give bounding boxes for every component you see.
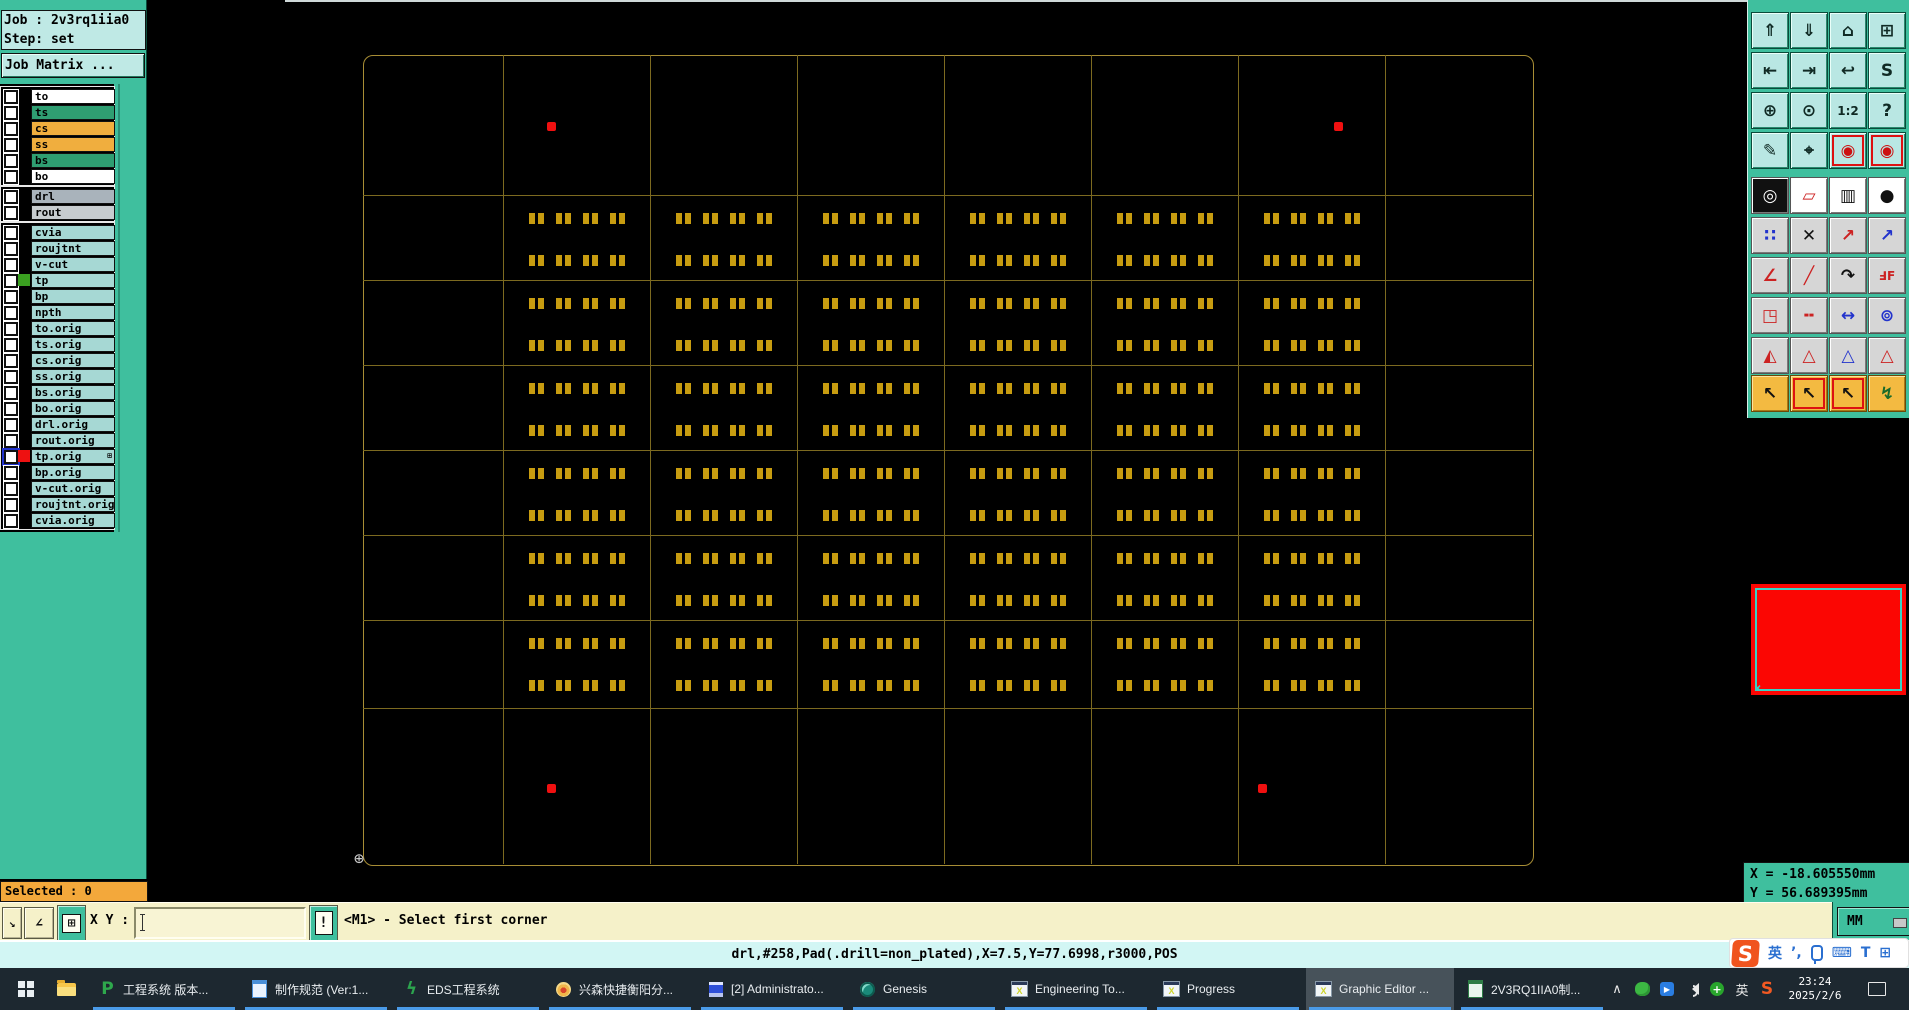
- layer-checkbox-tp[interactable]: [4, 274, 18, 288]
- pad-cluster: [970, 298, 985, 309]
- alert-icon: !: [315, 911, 333, 935]
- pad-cluster: [850, 553, 865, 564]
- layer-checkbox-ss.orig[interactable]: [4, 370, 18, 384]
- layer-row-tp.orig[interactable]: tp.orig⊞: [1, 448, 113, 464]
- pad-cluster: [997, 638, 1012, 649]
- pad-cluster: [877, 255, 892, 266]
- layer-row-to.orig[interactable]: to.orig: [1, 320, 113, 336]
- pad-cluster: [997, 298, 1012, 309]
- layer-checkbox-v-cut.orig[interactable]: [4, 482, 18, 496]
- navigator-overview[interactable]: ×: [1751, 584, 1906, 695]
- pad-cluster: [1051, 510, 1066, 521]
- layer-row-cvia.orig[interactable]: cvia.orig: [1, 512, 113, 528]
- pad-cluster: [703, 595, 718, 606]
- red-frame-decoration: [1793, 378, 1825, 409]
- input-lang-indicator[interactable]: 英: [1730, 968, 1754, 1010]
- action-center-icon[interactable]: [1868, 982, 1886, 996]
- pad-cluster: [583, 255, 598, 266]
- grid-hline-7: [363, 708, 1532, 709]
- pad-cluster: [823, 213, 838, 224]
- taskbar-app-5[interactable]: [2] Administrato...: [698, 968, 846, 1010]
- y-coordinate: Y = 56.689395mm: [1750, 884, 1909, 903]
- pad-cluster: [1264, 298, 1279, 309]
- pad-cluster: [1051, 340, 1066, 351]
- layer-label: drl: [31, 189, 115, 204]
- top-border-line: [285, 0, 1909, 2]
- pad-cluster: [850, 255, 865, 266]
- help-button[interactable]: ?: [1868, 92, 1906, 129]
- break-segment-button[interactable]: ╍: [1790, 297, 1828, 334]
- pad-cluster: [997, 425, 1012, 436]
- layer-row-drl.orig[interactable]: drl.orig: [1, 416, 113, 432]
- pad-cluster: [1051, 553, 1066, 564]
- grid-hline-1: [363, 195, 1532, 196]
- layer-row-bs.orig[interactable]: bs.orig: [1, 384, 113, 400]
- serpentine-button[interactable]: S: [1868, 52, 1906, 89]
- pad-cluster: [877, 340, 892, 351]
- layer-row-bs[interactable]: bs: [1, 152, 113, 168]
- origin-probe-button[interactable]: ⌖: [1790, 132, 1828, 169]
- pad-cluster: [823, 680, 838, 691]
- pad-cluster: [676, 340, 691, 351]
- taskbar-app-8[interactable]: XProgress: [1154, 968, 1302, 1010]
- pad-cluster: [1024, 213, 1039, 224]
- pad-cluster: [1291, 553, 1306, 564]
- grid-hline-6: [363, 620, 1532, 621]
- delete-object-button[interactable]: ✕: [1790, 217, 1828, 254]
- layer-row-npth[interactable]: npth: [1, 304, 113, 320]
- pad-cluster: [757, 340, 772, 351]
- pad-cluster: [1144, 638, 1159, 649]
- home-view-button[interactable]: ⌂: [1829, 12, 1867, 49]
- ime-language-toggle[interactable]: 英: [1768, 943, 1782, 963]
- pad-cluster: [1345, 213, 1360, 224]
- pad-cluster: [1198, 680, 1213, 691]
- layer-checkbox-cs[interactable]: [4, 122, 18, 136]
- ime-microphone-icon[interactable]: [1811, 945, 1823, 961]
- sogou-tray-icon[interactable]: S: [1755, 968, 1779, 1010]
- select-single-button[interactable]: ↖: [1751, 375, 1789, 412]
- pad-cluster: [529, 298, 544, 309]
- layer-checkbox-ss[interactable]: [4, 138, 18, 152]
- reshape-button[interactable]: ▱: [1790, 177, 1828, 214]
- arrow-under-button[interactable]: ◭: [1751, 337, 1789, 374]
- pad-cluster: [529, 510, 544, 521]
- pad-cluster: [610, 510, 625, 521]
- invert-display-button[interactable]: ◎: [1751, 177, 1789, 214]
- layer-label: ts: [31, 105, 115, 120]
- layer-row-cs.orig[interactable]: cs.orig: [1, 352, 113, 368]
- pad-cluster: [703, 553, 718, 564]
- origin-marker-icon: ⊕: [354, 851, 364, 868]
- wechat-icon[interactable]: [1630, 968, 1654, 1010]
- zoom-area-button[interactable]: ⇑: [1751, 12, 1789, 49]
- layer-row-tp[interactable]: tp: [1, 272, 113, 288]
- messenger-icon[interactable]: ▶: [1655, 968, 1679, 1010]
- ime-skin-icon[interactable]: T: [1861, 945, 1871, 961]
- pan-right-button[interactable]: ⇥: [1790, 52, 1828, 89]
- pad-cluster: [610, 383, 625, 394]
- pad-cluster: [610, 468, 625, 479]
- grid-vline-5: [1091, 55, 1092, 864]
- chevron-up-icon[interactable]: ∧: [1605, 968, 1629, 1010]
- sogou-logo-icon[interactable]: S: [1731, 940, 1760, 967]
- pad-cluster: [529, 340, 544, 351]
- folder-icon: [57, 983, 76, 996]
- previous-view-button[interactable]: ↩: [1829, 52, 1867, 89]
- layer-row-ts[interactable]: ts: [1, 104, 113, 120]
- select-polygon-button[interactable]: ↖: [1829, 375, 1867, 412]
- layer-row-rout.orig[interactable]: rout.orig: [1, 432, 113, 448]
- pad-cluster: [529, 595, 544, 606]
- layer-row-drl[interactable]: drl: [1, 188, 113, 204]
- pad-cluster: [970, 425, 985, 436]
- pad-cluster: [730, 595, 745, 606]
- taskbar-app-2[interactable]: 制作规范 (Ver:1...: [242, 968, 390, 1010]
- pad-cluster: [1144, 553, 1159, 564]
- arrow-gate-button[interactable]: △: [1829, 337, 1867, 374]
- grid-icon: ⊞: [62, 914, 81, 933]
- xy-input-value: [136, 914, 146, 929]
- pad-cluster: [1198, 425, 1213, 436]
- pad-cluster: [529, 255, 544, 266]
- pad-cluster: [1198, 468, 1213, 479]
- pad-cluster: [823, 298, 838, 309]
- taskbar-app-6[interactable]: Genesis: [850, 968, 998, 1010]
- pad-cluster: [997, 595, 1012, 606]
- pad-cluster: [583, 638, 598, 649]
- pad-cluster: [1144, 255, 1159, 266]
- pad-cluster: [703, 680, 718, 691]
- pad-cluster: [1198, 340, 1213, 351]
- layer-checkbox-bo.orig[interactable]: [4, 402, 18, 416]
- pad-cluster: [1024, 553, 1039, 564]
- pad-cluster: [757, 553, 772, 564]
- connectivity-button[interactable]: ∷: [1751, 217, 1789, 254]
- layer-label: tp: [31, 273, 115, 288]
- pad-cluster: [757, 255, 772, 266]
- job-info-box: Job : 2v3rq1iia0 Step: set: [1, 10, 146, 50]
- units-button[interactable]: MM: [1837, 907, 1909, 936]
- pad-cluster: [1264, 468, 1279, 479]
- start-button[interactable]: [6, 968, 46, 1010]
- zoom-center-button[interactable]: ⊙: [1790, 92, 1828, 129]
- layer-row-cvia[interactable]: cvia: [1, 224, 113, 240]
- layer-label: npth: [31, 305, 115, 320]
- pad-cluster: [1144, 298, 1159, 309]
- fiducial-dot-4: [1258, 784, 1267, 793]
- pad-cluster: [1291, 680, 1306, 691]
- fiducial-dot-3: [547, 784, 556, 793]
- pad-cluster: [1171, 680, 1186, 691]
- grid-hline-5: [363, 535, 1532, 536]
- layer-row-cs[interactable]: cs: [1, 120, 113, 136]
- pad-cluster: [1144, 425, 1159, 436]
- pad-cluster: [1171, 553, 1186, 564]
- layer-row-ts.orig[interactable]: ts.orig: [1, 336, 113, 352]
- select-window-button[interactable]: ↖: [1790, 375, 1828, 412]
- layer-row-v-cut.orig[interactable]: v-cut.orig: [1, 480, 113, 496]
- layer-checkbox-rout[interactable]: [4, 206, 18, 220]
- layer-checkbox-drl.orig[interactable]: [4, 418, 18, 432]
- taskbar-app-4[interactable]: 兴森快捷衡阳分...: [546, 968, 694, 1010]
- ime-punctuation-icon[interactable]: ’,: [1791, 945, 1802, 961]
- pad-cluster: [703, 383, 718, 394]
- layer-label: bs.orig: [31, 385, 115, 400]
- layer-checkbox-cvia[interactable]: [4, 226, 18, 240]
- taskbar-app-10[interactable]: 2V3RQ1IIA0制...: [1458, 968, 1606, 1010]
- pad-cluster: [1291, 213, 1306, 224]
- taskbar-app-label: Genesis: [883, 982, 927, 996]
- pad-cluster: [1345, 468, 1360, 479]
- taskbar-app-7[interactable]: XEngineering To...: [1002, 968, 1150, 1010]
- layer-label: bo.orig: [31, 401, 115, 416]
- layer-label: roujtnt.orig: [31, 497, 115, 512]
- pad-cluster: [610, 340, 625, 351]
- grid-vline-3: [797, 55, 798, 864]
- highlight-net-a-button[interactable]: ◉: [1829, 132, 1867, 169]
- ime-toolbox-icon[interactable]: ⊞: [1879, 945, 1891, 961]
- pad-cluster: [970, 213, 985, 224]
- winx-icon: X: [1315, 981, 1332, 998]
- pad-cluster: [970, 383, 985, 394]
- pad-cluster: [730, 553, 745, 564]
- layer-label: v-cut: [31, 257, 115, 272]
- pad-cluster: [997, 680, 1012, 691]
- layer-row-v-cut[interactable]: v-cut: [1, 256, 113, 272]
- pad-cluster: [850, 468, 865, 479]
- pad-cluster: [1291, 468, 1306, 479]
- measure-ruler-button[interactable]: ▥: [1829, 177, 1867, 214]
- measure-slope-button[interactable]: ╱: [1790, 257, 1828, 294]
- pad-cluster: [556, 425, 571, 436]
- pad-cluster: [1024, 468, 1039, 479]
- taskbar-app-9[interactable]: XGraphic Editor ...: [1306, 968, 1454, 1010]
- zoom-screen-button[interactable]: ⇓: [1790, 12, 1828, 49]
- layer-color-swatch: [18, 274, 30, 286]
- pad-cluster: [1264, 510, 1279, 521]
- pad-cluster: [556, 638, 571, 649]
- grid-hline-3: [363, 365, 1532, 366]
- pad-cluster: [1264, 425, 1279, 436]
- pad-cluster: [1318, 340, 1333, 351]
- pad-cluster: [703, 213, 718, 224]
- pad-cluster: [1144, 383, 1159, 394]
- xy-coordinate-input[interactable]: [134, 907, 306, 939]
- pad-cluster: [610, 298, 625, 309]
- layer-row-bp[interactable]: bp: [1, 288, 113, 304]
- file-explorer-button[interactable]: [46, 968, 86, 1010]
- pad-cluster: [730, 510, 745, 521]
- layer-checkbox-bo[interactable]: [4, 170, 18, 184]
- pad-cluster: [1051, 680, 1066, 691]
- layer-checkbox-tp.orig[interactable]: [4, 450, 18, 464]
- job-matrix-button[interactable]: Job Matrix ...: [1, 53, 145, 78]
- pad-cluster: [1024, 595, 1039, 606]
- layer-checkbox-bp.orig[interactable]: [4, 466, 18, 480]
- measure-angle-button[interactable]: ∠: [1751, 257, 1789, 294]
- tile-xy-button[interactable]: ⊞: [1868, 12, 1906, 49]
- layer-checkbox-drl[interactable]: [4, 190, 18, 204]
- grid-vline-4: [944, 55, 945, 864]
- fiducial-dot-2: [1334, 122, 1343, 131]
- pad-cluster: [610, 638, 625, 649]
- alert-button[interactable]: !: [309, 905, 338, 941]
- pad-cluster: [730, 255, 745, 266]
- grid-toggle-button[interactable]: ⊞: [57, 905, 86, 941]
- pad-cluster: [1345, 638, 1360, 649]
- highlight-net-b-button[interactable]: ◉: [1868, 132, 1906, 169]
- pad-cluster: [1171, 638, 1186, 649]
- shell-icon: [555, 981, 572, 998]
- mirror-object-button[interactable]: ℲF: [1868, 257, 1906, 294]
- pad-cluster: [757, 510, 772, 521]
- volume-icon[interactable]: [1680, 968, 1704, 1010]
- pad-cluster: [1117, 340, 1132, 351]
- layer-row-roujtnt.orig[interactable]: roujtnt.orig: [1, 496, 113, 512]
- taskbar-app-1[interactable]: P工程系统 版本...: [90, 968, 238, 1010]
- layer-checkbox-to[interactable]: [4, 90, 18, 104]
- layer-row-ss[interactable]: ss: [1, 136, 113, 152]
- layer-checkbox-ts[interactable]: [4, 106, 18, 120]
- layer-checkbox-bp[interactable]: [4, 290, 18, 304]
- resize-handle-button[interactable]: ↘: [2, 907, 22, 939]
- layer-checkbox-ts.orig[interactable]: [4, 338, 18, 352]
- pad-cluster: [1318, 213, 1333, 224]
- x-coordinate: X = -18.605550mm: [1750, 865, 1909, 884]
- layer-checkbox-cvia.orig[interactable]: [4, 514, 18, 528]
- combine-shape-button[interactable]: ⊚: [1868, 297, 1906, 334]
- setup-tools-button[interactable]: ✎: [1751, 132, 1789, 169]
- pad-cluster: [583, 298, 598, 309]
- move-object-button[interactable]: ↗: [1829, 217, 1867, 254]
- pad-cluster: [583, 468, 598, 479]
- layer-row-bo[interactable]: bo: [1, 168, 113, 184]
- pad-cluster: [1024, 425, 1039, 436]
- layer-row-to[interactable]: to: [1, 88, 113, 104]
- layer-checkbox-v-cut[interactable]: [4, 258, 18, 272]
- layer-list: totscsssbsbodrlroutcviaroujtntv-cuttpbpn…: [0, 84, 114, 532]
- pad-cluster: [583, 383, 598, 394]
- layer-row-ss.orig[interactable]: ss.orig: [1, 368, 113, 384]
- layer-checkbox-bs[interactable]: [4, 154, 18, 168]
- layer-row-bp.orig[interactable]: bp.orig: [1, 464, 113, 480]
- pad-cluster: [1051, 638, 1066, 649]
- pad-cluster: [997, 340, 1012, 351]
- pad-cluster: [1198, 298, 1213, 309]
- pad-cluster: [730, 425, 745, 436]
- winx-icon: X: [1011, 981, 1028, 998]
- layer-label: ss.orig: [31, 369, 115, 384]
- job-label: Job : 2v3rq1iia0: [4, 11, 145, 30]
- pad-cluster: [583, 340, 598, 351]
- pad-cluster: [1318, 638, 1333, 649]
- pad-cluster: [1051, 255, 1066, 266]
- safety-icon[interactable]: +: [1705, 968, 1729, 1010]
- layer-label: rout: [31, 205, 115, 220]
- zoom-1-2-button[interactable]: 1:2: [1829, 92, 1867, 129]
- pad-cluster: [877, 213, 892, 224]
- pad-cluster: [1171, 298, 1186, 309]
- pad-cluster: [529, 213, 544, 224]
- pad-cluster: [1117, 468, 1132, 479]
- angle-mode-button[interactable]: ∠: [24, 907, 54, 939]
- pad-cluster: [610, 680, 625, 691]
- feature-info-bar: drl,#258,Pad(.drill=non_plated),X=7.5,Y=…: [0, 940, 1909, 970]
- pad-cluster: [703, 255, 718, 266]
- taskbar-app-3[interactable]: ϟEDS工程系统: [394, 968, 542, 1010]
- pad-cluster: [904, 638, 919, 649]
- pad-cluster: [676, 383, 691, 394]
- rotate-object-button[interactable]: ↷: [1829, 257, 1867, 294]
- pad-cluster: [1345, 425, 1360, 436]
- pad-cluster: [970, 680, 985, 691]
- layer-checkbox-cs.orig[interactable]: [4, 354, 18, 368]
- arrow-chevron-button[interactable]: △: [1790, 337, 1828, 374]
- ime-keyboard-icon[interactable]: ⌨: [1832, 945, 1852, 961]
- select-path-button[interactable]: ↯: [1868, 375, 1906, 412]
- pad-cluster: [877, 468, 892, 479]
- pad-cluster: [1264, 383, 1279, 394]
- pad-cluster: [997, 213, 1012, 224]
- pan-left-button[interactable]: ⇤: [1751, 52, 1789, 89]
- layer-checkbox-bs.orig[interactable]: [4, 386, 18, 400]
- red-frame-decoration: [1871, 135, 1903, 166]
- layer-checkbox-rout.orig[interactable]: [4, 434, 18, 448]
- pad-cluster: [850, 383, 865, 394]
- pad-cluster: [823, 340, 838, 351]
- layer-checkbox-npth[interactable]: [4, 306, 18, 320]
- arrow-cross-button[interactable]: △: [1868, 337, 1906, 374]
- layer-label: bo: [31, 169, 115, 184]
- layer-checkbox-roujtnt[interactable]: [4, 242, 18, 256]
- layer-label: to.orig: [31, 321, 115, 336]
- layer-checkbox-roujtnt.orig[interactable]: [4, 498, 18, 512]
- ime-toolbar[interactable]: S 英 ’, ⌨ T ⊞: [1729, 938, 1909, 968]
- pad-cluster: [850, 213, 865, 224]
- pad-cluster: [1318, 680, 1333, 691]
- measure-gap-button[interactable]: ↔: [1829, 297, 1867, 334]
- red-frame-decoration: [1832, 135, 1864, 166]
- pad-filter-button[interactable]: ●: [1868, 177, 1906, 214]
- copy-object-button[interactable]: ↗: [1868, 217, 1906, 254]
- taskbar-clock[interactable]: 23:24 2025/2/6: [1784, 968, 1846, 1010]
- navigator-origin-x-icon: ×: [1754, 681, 1761, 695]
- pad-cluster: [1171, 468, 1186, 479]
- pad-cluster: [1144, 510, 1159, 521]
- pad-cluster: [1024, 510, 1039, 521]
- panel-outline: [363, 55, 1534, 866]
- layer-checkbox-to.orig[interactable]: [4, 322, 18, 336]
- pad-cluster: [556, 298, 571, 309]
- red-frame-decoration: [1832, 378, 1864, 409]
- layer-label: cvia.orig: [31, 513, 115, 528]
- layer-row-rout[interactable]: rout: [1, 204, 113, 220]
- grid-hline-2: [363, 280, 1532, 281]
- layer-row-roujtnt[interactable]: roujtnt: [1, 240, 113, 256]
- zoom-in-button[interactable]: ⊕: [1751, 92, 1789, 129]
- pad-cluster: [703, 425, 718, 436]
- coordinate-readout: X = -18.605550mm Y = 56.689395mm: [1743, 862, 1909, 907]
- layer-row-bo.orig[interactable]: bo.orig: [1, 400, 113, 416]
- transform-shape-button[interactable]: ◳: [1751, 297, 1789, 334]
- pad-cluster: [610, 595, 625, 606]
- pad-cluster: [850, 680, 865, 691]
- pad-cluster: [1144, 680, 1159, 691]
- layer-label: ts.orig: [31, 337, 115, 352]
- pad-cluster: [583, 680, 598, 691]
- pad-cluster: [904, 510, 919, 521]
